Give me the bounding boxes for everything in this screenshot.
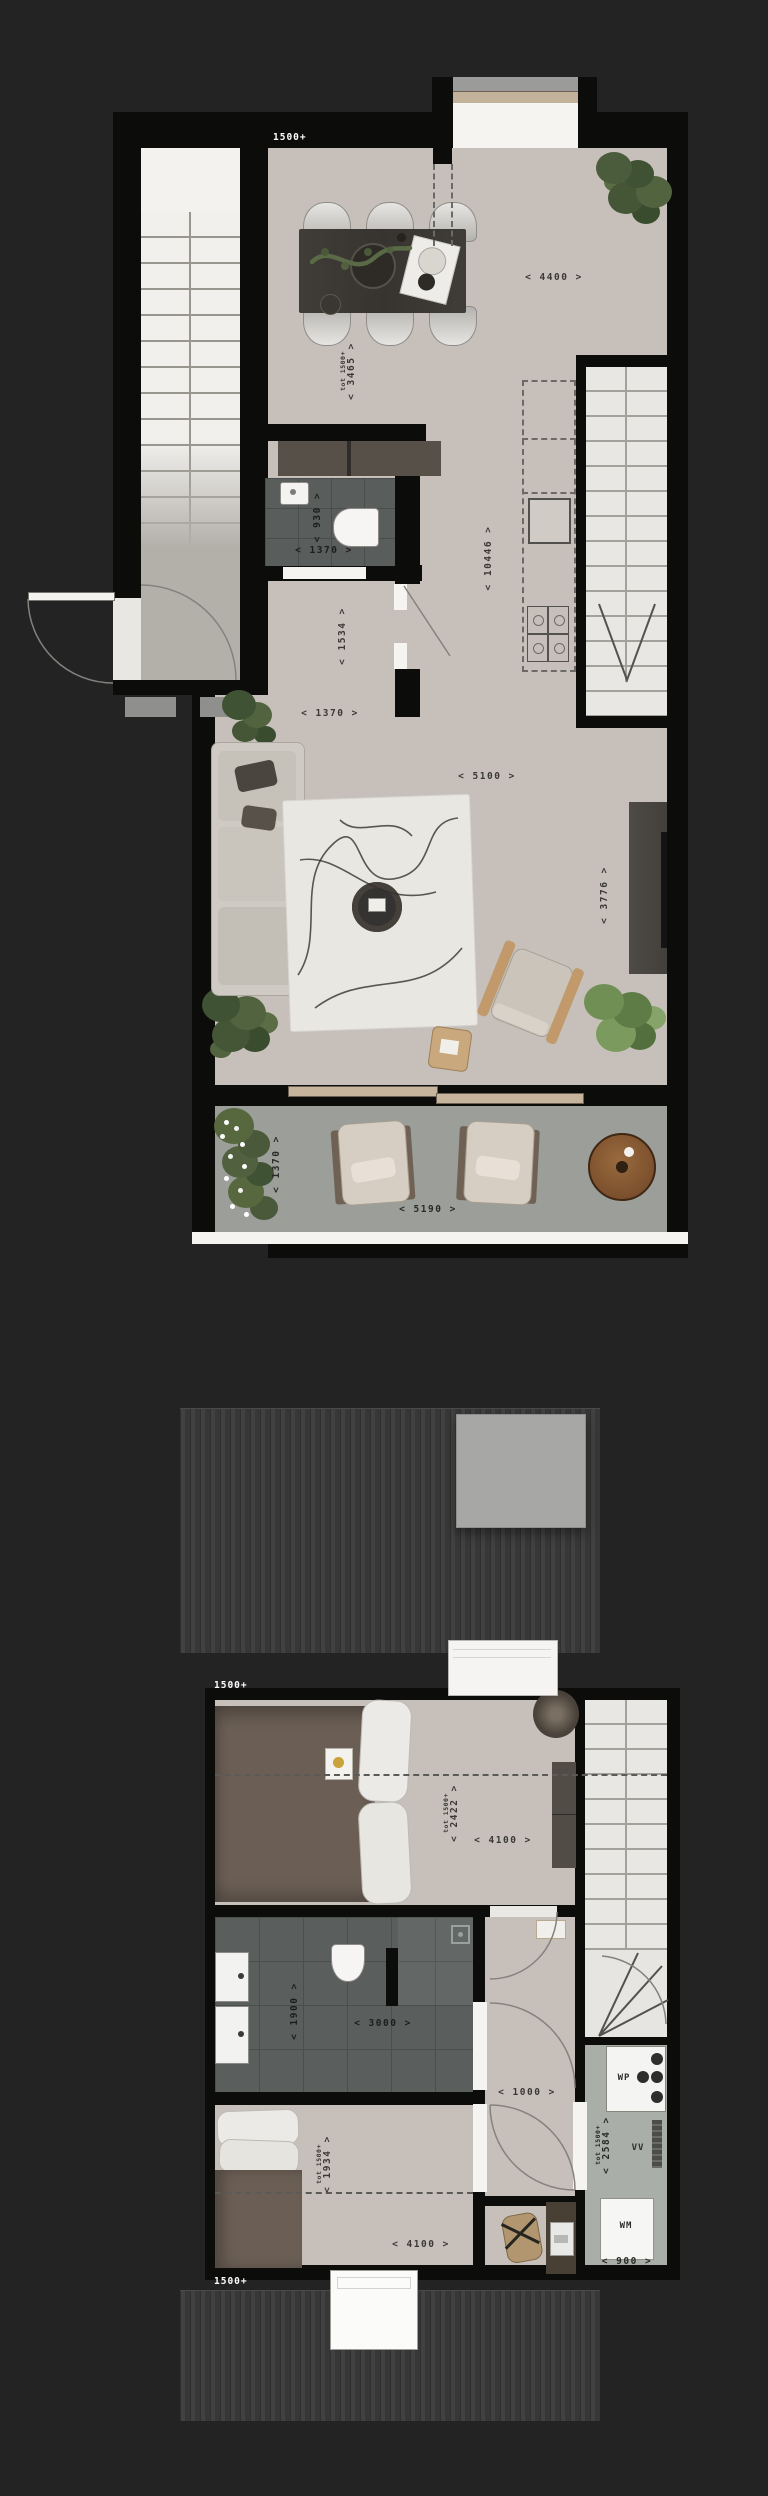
- dim-living-width: < 5100 >: [458, 772, 516, 782]
- tech-door-arc: [490, 2105, 575, 2190]
- dim-terrace-depth: < 1370 >: [272, 1135, 282, 1193]
- garland-leaf: [364, 248, 372, 256]
- dim-hall-width: < 1370 >: [301, 709, 359, 719]
- bedroom2-door-arc: [490, 2105, 575, 2190]
- dim-bedroom2-depth: tot 1500+< 1934 >: [316, 2135, 334, 2193]
- dim-bedroom1-depth: tot 1500+< 2422 >: [443, 1784, 461, 1842]
- garland-leaf: [387, 247, 394, 254]
- dim-landing-width: < 1000 >: [498, 2088, 556, 2098]
- rug-pattern: [298, 818, 458, 975]
- label-heat-pump: WP: [618, 2073, 631, 2083]
- living-door-leaf: [404, 586, 450, 656]
- dim-dining-depth: tot 1500+< 3465 >: [340, 342, 358, 400]
- garland-leaf: [341, 262, 349, 270]
- dim-total-length: < 10446 >: [484, 526, 494, 591]
- dim-bathroom-width: < 3000 >: [354, 2019, 412, 2029]
- dim-tech-depth: tot 1500+< 2584 >: [595, 2116, 613, 2174]
- linework-overlay: [0, 0, 768, 2496]
- winder-treads: [599, 1953, 668, 2036]
- front-door-swing-arc: [28, 599, 113, 683]
- dim-bathroom-depth: < 1900 >: [290, 1982, 300, 2040]
- dim-wc-width: < 930 >: [313, 492, 323, 543]
- level-marker-top: 1500+: [214, 1680, 248, 1691]
- dim-dining-width: < 4400 >: [525, 273, 583, 283]
- dim-tech-width: < 900 >: [602, 2257, 653, 2267]
- dim-terrace-width: < 5190 >: [399, 1205, 457, 1215]
- dim-bedroom2-width: < 4100 >: [392, 2240, 450, 2250]
- winder-arc: [602, 1956, 666, 2024]
- level-marker: 1500+: [273, 132, 307, 143]
- hall-door-swing-arc: [141, 585, 236, 680]
- bathroom-door-arc: [490, 2003, 575, 2088]
- label-washing-machine: WM: [620, 2221, 633, 2231]
- floorplan-canvas: 1500+ < 4400 > tot 1500+< 3465 > < 10446…: [0, 0, 768, 2496]
- bedroom1-door-arc: [490, 1912, 557, 1979]
- dim-hall-depth: < 1534 >: [338, 607, 348, 665]
- garland-leaf: [321, 248, 329, 256]
- rug-pattern: [300, 820, 462, 1008]
- stair-direction-arrow: [599, 604, 655, 680]
- label-ventilation: VV: [632, 2143, 645, 2153]
- dim-living-depth: < 3776 >: [600, 866, 610, 924]
- dim-wc-length: < 1370 >: [295, 546, 353, 556]
- level-marker-bottom: 1500+: [214, 2276, 248, 2287]
- dim-bedroom1-width: < 4100 >: [474, 1836, 532, 1846]
